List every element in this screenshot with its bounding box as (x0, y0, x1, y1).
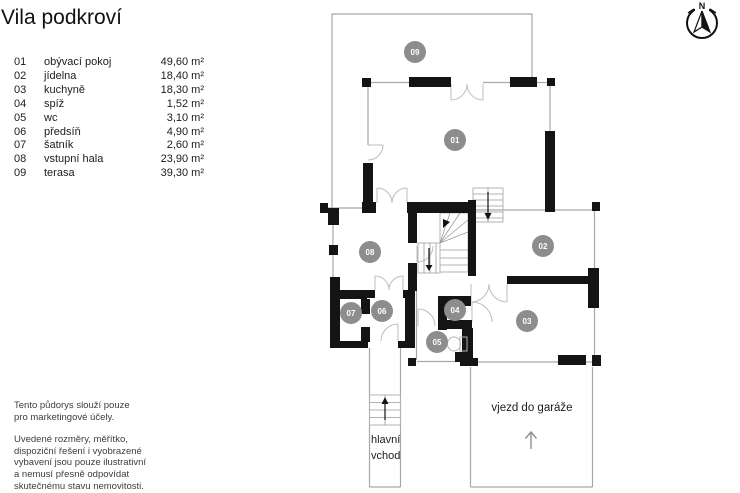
floor-plan: hlavní vchod vjezd do garáže 09 01 (0, 0, 740, 493)
svg-text:08: 08 (366, 248, 375, 257)
main-entrance-label-line2: vchod (371, 450, 400, 462)
room-badge-04: 04 (444, 299, 466, 321)
north-compass-icon: N (687, 0, 717, 38)
room-badge-02: 02 (532, 235, 554, 257)
room-badge-07: 07 (340, 302, 362, 324)
room-badge-03: 03 (516, 310, 538, 332)
garage-driveway: vjezd do garáže (471, 367, 593, 487)
main-entrance-walkway: hlavní vchod (370, 348, 401, 487)
walls (320, 77, 601, 366)
svg-text:09: 09 (411, 48, 420, 57)
svg-text:01: 01 (451, 136, 460, 145)
svg-text:04: 04 (451, 306, 460, 315)
garage-label: vjezd do garáže (491, 402, 572, 414)
room-badge-06: 06 (371, 300, 393, 322)
svg-text:03: 03 (523, 317, 532, 326)
garage-direction-arrow (526, 432, 537, 449)
svg-text:05: 05 (433, 338, 442, 347)
svg-text:02: 02 (539, 242, 548, 251)
room-badge-09: 09 (404, 41, 426, 63)
compass-n-label: N (699, 1, 706, 11)
main-entrance-label-line1: hlavní (371, 434, 400, 446)
terrace-outline (332, 14, 532, 208)
floorplan-page: Vila podkroví 01 obývací pokoj 49,60 m² … (0, 0, 740, 493)
room-badge-08: 08 (359, 241, 381, 263)
room-badge-01: 01 (444, 129, 466, 151)
room-badge-05: 05 (426, 331, 448, 353)
svg-text:06: 06 (378, 307, 387, 316)
svg-text:07: 07 (347, 309, 356, 318)
staircase (418, 188, 503, 273)
